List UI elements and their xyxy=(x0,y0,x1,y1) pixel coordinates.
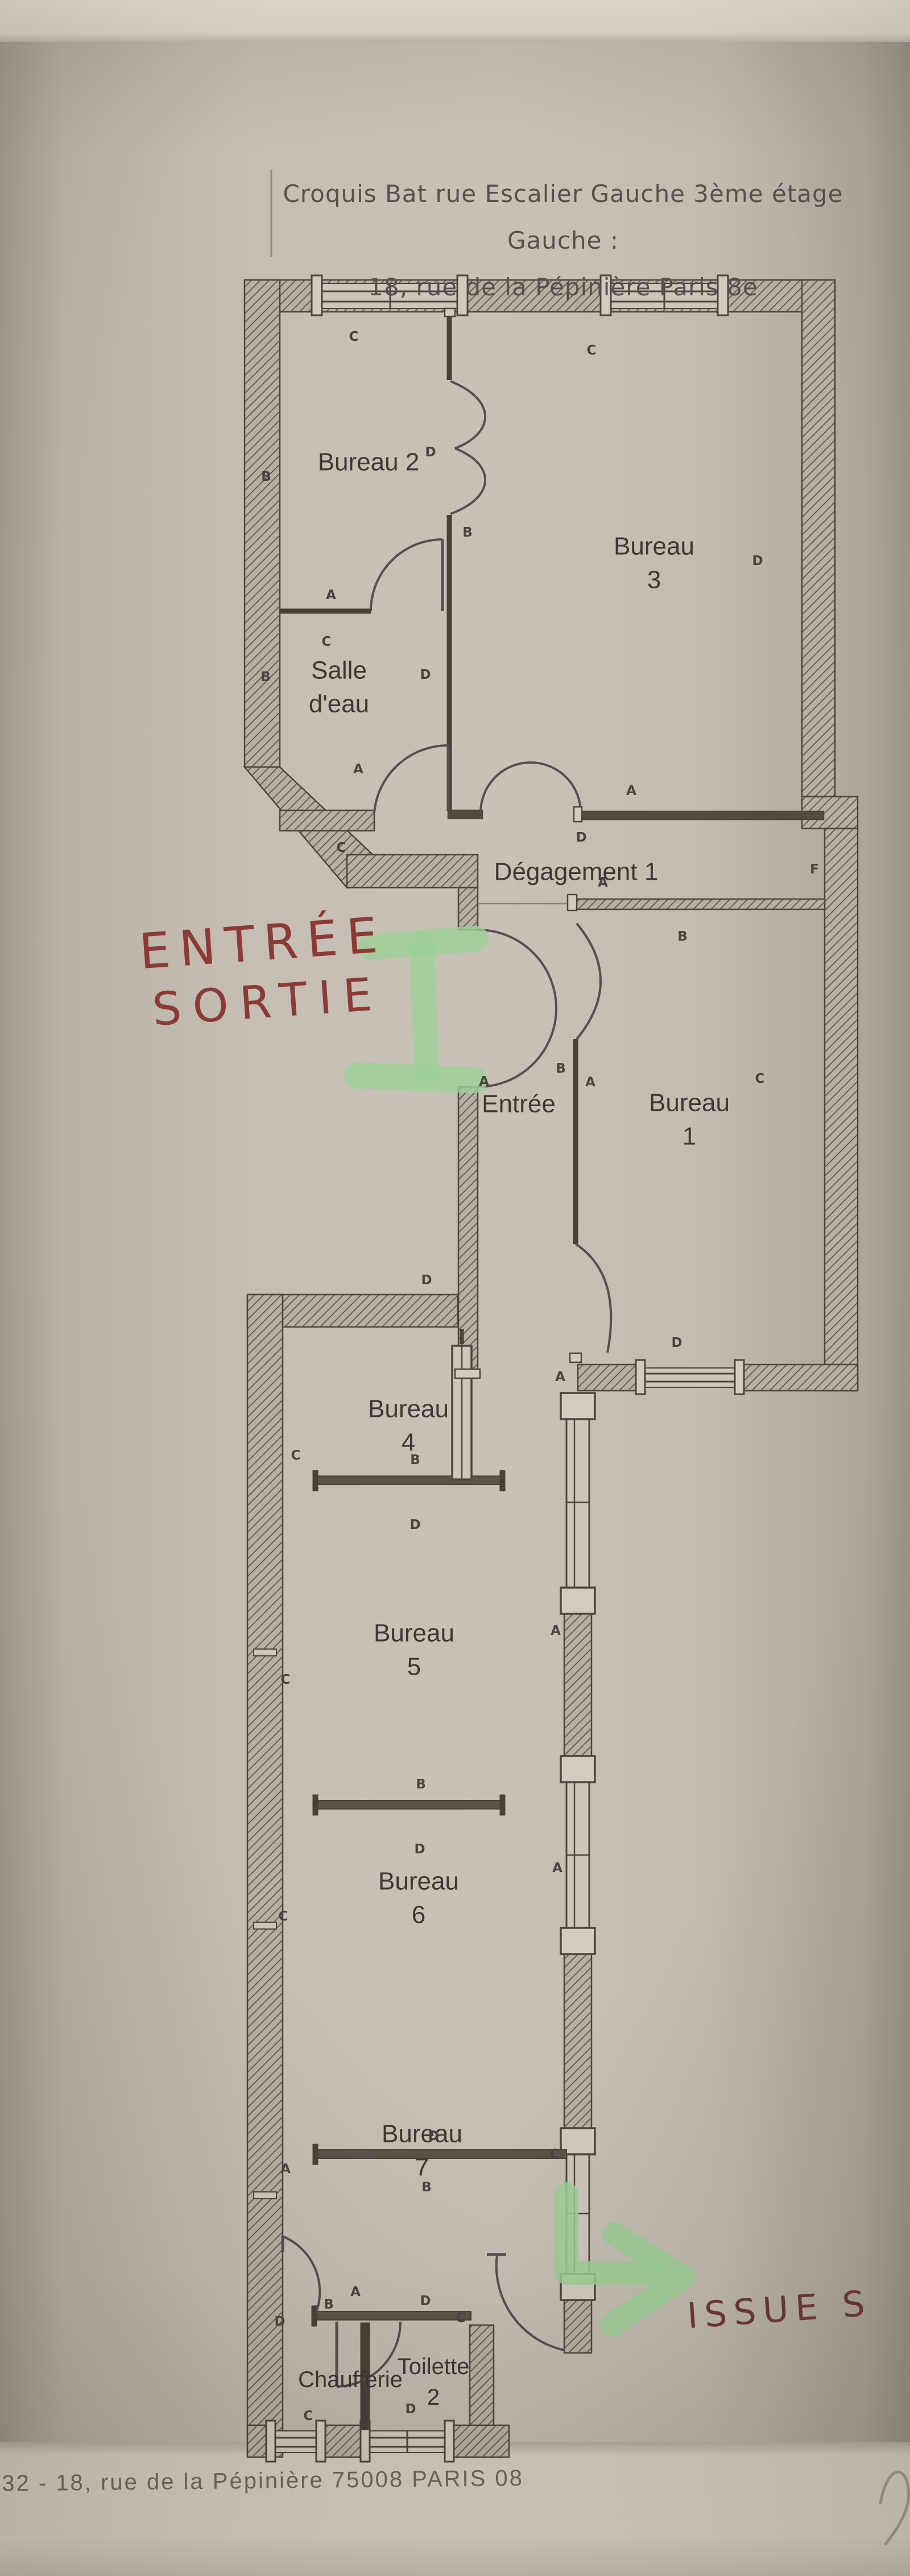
wall-letter-B: B xyxy=(260,670,271,685)
room-label-salle-d-eau: Salled'eau xyxy=(309,654,369,722)
wall-letter-D: D xyxy=(274,2314,285,2329)
wall-letter-A: A xyxy=(585,1075,595,1090)
room-label-bureau-2: Bureau 2 xyxy=(318,445,420,479)
wall-letter-C: C xyxy=(456,2311,466,2326)
wall-letter-C: C xyxy=(304,2409,313,2423)
handwritten-entree-sortie: ENTRÉE SORTIE xyxy=(138,906,392,1037)
wall-letter-A: A xyxy=(479,1074,489,1089)
room-label-bureau-7: Bureau7 xyxy=(382,2117,462,2185)
room-label-entree: Entrée xyxy=(482,1087,556,1120)
wall-letter-C: C xyxy=(291,1448,301,1463)
wall-letter-B: B xyxy=(261,469,271,484)
glazed-partition-bureau4 xyxy=(452,1346,471,1479)
wall-letter-D: D xyxy=(409,1518,420,1532)
partitions xyxy=(280,312,576,2430)
wall-letter-C: C xyxy=(281,1672,291,1687)
room-label-bureau-3: Bureau3 xyxy=(614,530,694,597)
walls-hatched xyxy=(245,280,858,2457)
wall-letter-D: D xyxy=(576,830,586,845)
room-label-degagement-1: Dégagement 1 xyxy=(494,855,659,888)
wall-letter-C: C xyxy=(322,634,332,649)
wall-letter-B: B xyxy=(421,2180,432,2195)
window-bottom-left xyxy=(266,2421,325,2462)
room-label-bureau-1: Bureau1 xyxy=(649,1086,730,1154)
wall-letter-A: A xyxy=(598,875,608,890)
room-label-chaufferie: Chaufferie xyxy=(298,2364,403,2395)
wall-letter-A: A xyxy=(350,2285,361,2299)
scanned-floorplan-photo: Croquis Bat rue Escalier Gauche 3ème éta… xyxy=(0,0,910,2576)
wall-letter-B: B xyxy=(416,1777,426,1792)
wall-letter-D: D xyxy=(420,667,431,682)
pencil-signature-squiggle xyxy=(880,2472,909,2545)
room-label-bureau-4: Bureau4 xyxy=(368,1392,449,1460)
wall-letter-A: A xyxy=(551,1623,561,1638)
wall-letter-A: A xyxy=(552,1861,562,1876)
wall-letter-D: D xyxy=(421,1273,432,1288)
wall-letter-B: B xyxy=(462,525,473,540)
wall-letter-C: C xyxy=(550,2147,560,2162)
wall-letter-C: C xyxy=(755,1071,765,1086)
wall-letter-B: B xyxy=(677,929,688,944)
wall-letter-C: C xyxy=(349,329,359,344)
plan-title: Croquis Bat rue Escalier Gauche 3ème éta… xyxy=(239,171,887,311)
wall-letter-D: D xyxy=(414,1842,425,1857)
wall-letter-D: D xyxy=(425,445,436,460)
wall-letter-B: B xyxy=(410,1453,420,1468)
title-line-2: 18, rue de la Pépinière Paris 8e xyxy=(239,264,887,311)
wall-letter-D: D xyxy=(420,2294,431,2309)
wall-letter-A: A xyxy=(626,784,636,798)
wall-letter-A: A xyxy=(326,588,336,603)
wall-letter-B: B xyxy=(556,1061,566,1076)
window-bottom-right xyxy=(361,2421,454,2462)
wall-letter-D: D xyxy=(405,2402,416,2417)
wall-letter-C: C xyxy=(337,840,346,855)
room-label-bureau-5: Bureau5 xyxy=(374,1617,454,1684)
floorplan-drawing xyxy=(0,0,910,2576)
wall-letter-F: F xyxy=(810,862,819,877)
wall-letter-D: D xyxy=(671,1336,682,1350)
wall-letter-D: D xyxy=(428,2129,439,2144)
wall-letter-D: D xyxy=(752,554,763,568)
room-label-bureau-6: Bureau6 xyxy=(378,1865,459,1932)
wall-letter-A: A xyxy=(353,762,363,777)
corridor-wall-glazing xyxy=(561,1393,595,2300)
wall-letter-A: A xyxy=(280,2162,291,2177)
wall-letter-A: A xyxy=(555,1370,565,1384)
wall-letter-B: B xyxy=(324,2297,334,2312)
wall-letter-C: C xyxy=(587,343,597,358)
wall-letter-C: C xyxy=(279,1909,288,1924)
title-line-1: Croquis Bat rue Escalier Gauche 3ème éta… xyxy=(239,171,887,264)
window-bureau1-bottom xyxy=(636,1360,744,1394)
